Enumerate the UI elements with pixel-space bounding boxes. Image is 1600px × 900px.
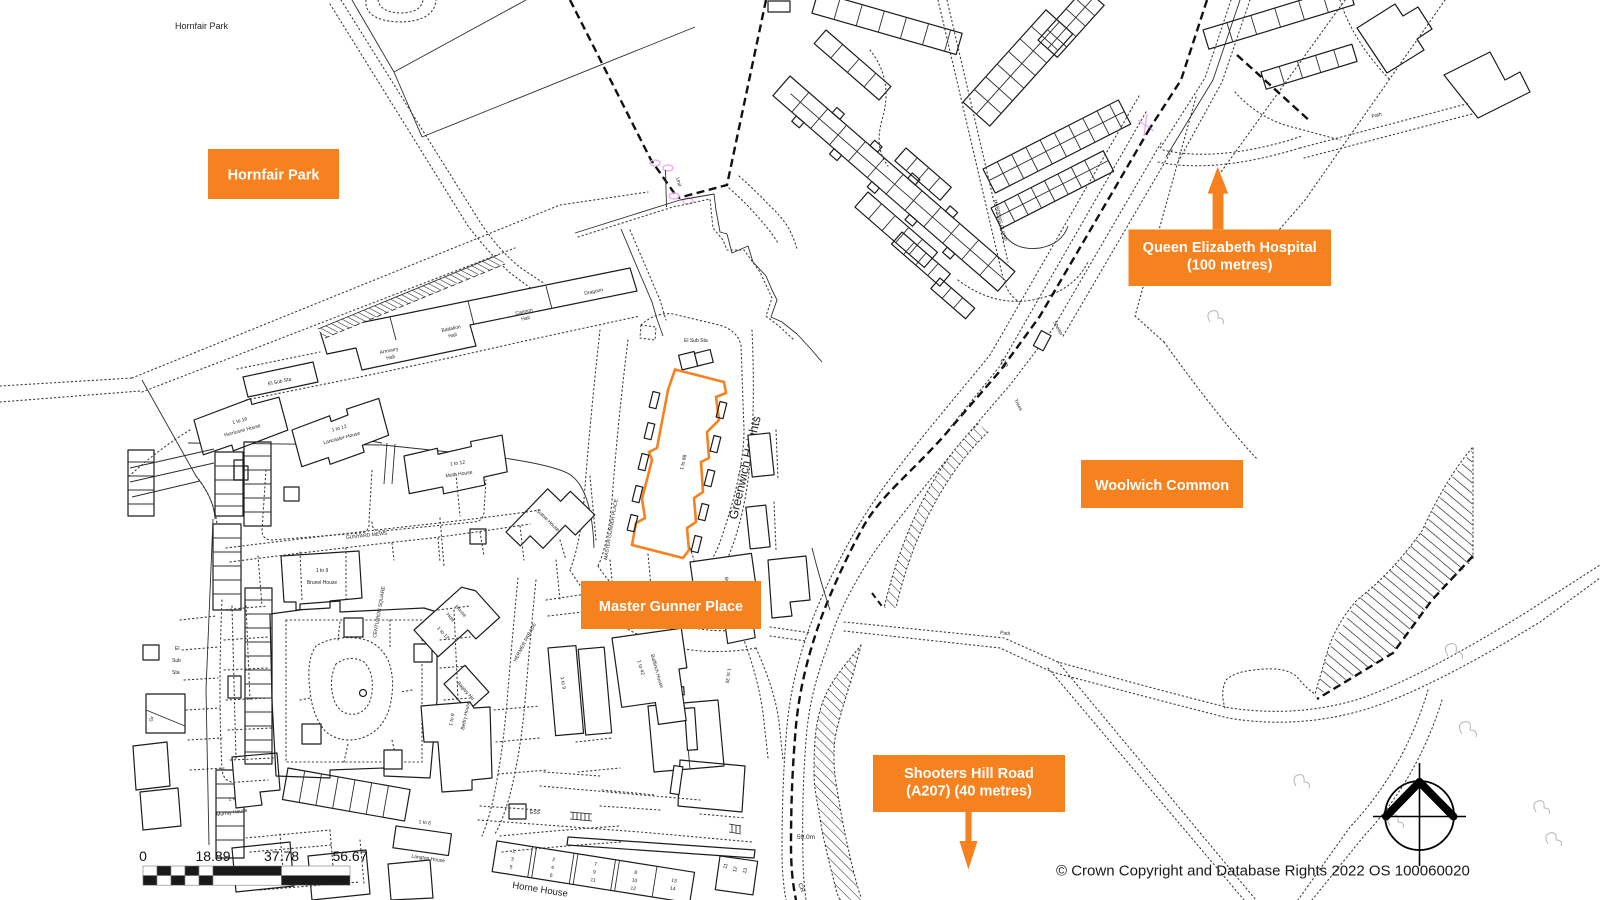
svg-text:Woolwich Common: Woolwich Common xyxy=(1095,478,1229,494)
svg-text:37.78: 37.78 xyxy=(264,848,299,864)
svg-text:Sub: Sub xyxy=(172,658,181,664)
svg-text:Hornfair Park: Hornfair Park xyxy=(175,21,229,31)
svg-text:Shooters Hill Road: Shooters Hill Road xyxy=(904,766,1034,782)
svg-text:© Crown Copyright and Database: © Crown Copyright and Database Rights 20… xyxy=(1056,863,1470,880)
svg-text:Hornfair Park: Hornfair Park xyxy=(228,168,321,184)
svg-text:Sta: Sta xyxy=(172,670,180,676)
svg-text:59.0m: 59.0m xyxy=(797,834,815,841)
svg-text:56.67: 56.67 xyxy=(332,848,367,864)
svg-text:ESS: ESS xyxy=(530,810,541,816)
svg-text:Brunel House: Brunel House xyxy=(307,580,338,586)
svg-text:(A207) (40 metres): (A207) (40 metres) xyxy=(906,784,1032,800)
svg-text:1 to 9: 1 to 9 xyxy=(316,568,329,574)
svg-text:El: El xyxy=(175,646,179,652)
svg-text:(100 metres): (100 metres) xyxy=(1187,258,1273,274)
svg-text:Queen Elizabeth Hospital: Queen Elizabeth Hospital xyxy=(1143,240,1317,256)
svg-text:Master Gunner Place: Master Gunner Place xyxy=(599,599,743,615)
svg-text:0: 0 xyxy=(139,848,147,864)
svg-text:El Sub Sta: El Sub Sta xyxy=(684,338,708,344)
svg-text:18.89: 18.89 xyxy=(195,848,230,864)
